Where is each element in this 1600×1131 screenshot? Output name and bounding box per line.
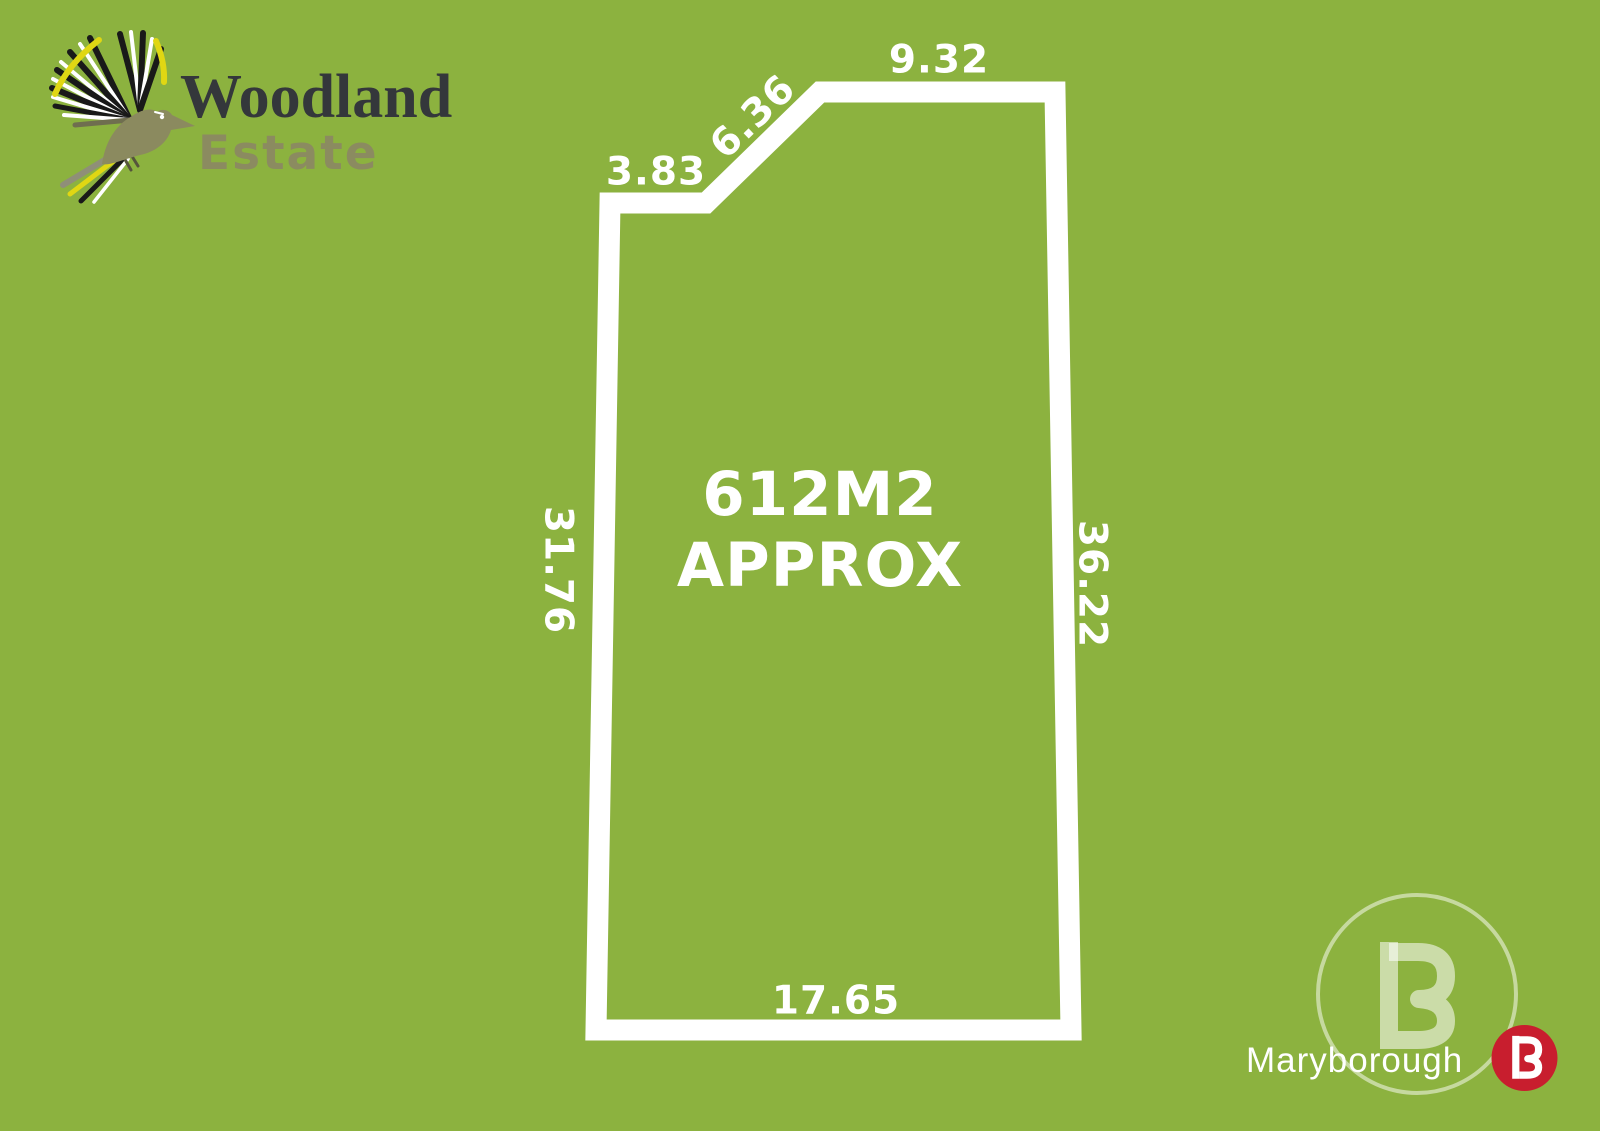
agency-logo	[1300, 880, 1600, 1131]
dimension-left: 31.76	[539, 506, 578, 634]
dimension-bottom: 17.65	[772, 982, 900, 1021]
brand-logo: Woodland Estate	[0, 0, 500, 220]
flyer-canvas: 9.32 6.36 3.83 31.76 36.22 17.65 612M2 A…	[0, 0, 1600, 1131]
bird-icon	[28, 22, 203, 207]
dimension-top: 9.32	[889, 41, 989, 80]
brand-name-line1: Woodland	[180, 66, 452, 128]
agency-name: Maryborough	[1246, 1043, 1463, 1078]
lot-area-line1: 612M2	[677, 459, 963, 530]
bird-right-wing	[120, 32, 164, 110]
bird-left-wing	[52, 38, 130, 125]
lot-area-label: 612M2 APPROX	[677, 459, 963, 601]
bird-eye	[160, 115, 164, 119]
dimension-upper-left: 3.83	[606, 153, 706, 192]
agency-badge-b-icon	[1516, 1036, 1539, 1079]
lot-area-line2: APPROX	[677, 530, 963, 601]
dimension-right: 36.22	[1073, 520, 1112, 648]
brand-name-line2: Estate	[198, 130, 379, 177]
agency-b-monogram-icon	[1389, 942, 1446, 1049]
